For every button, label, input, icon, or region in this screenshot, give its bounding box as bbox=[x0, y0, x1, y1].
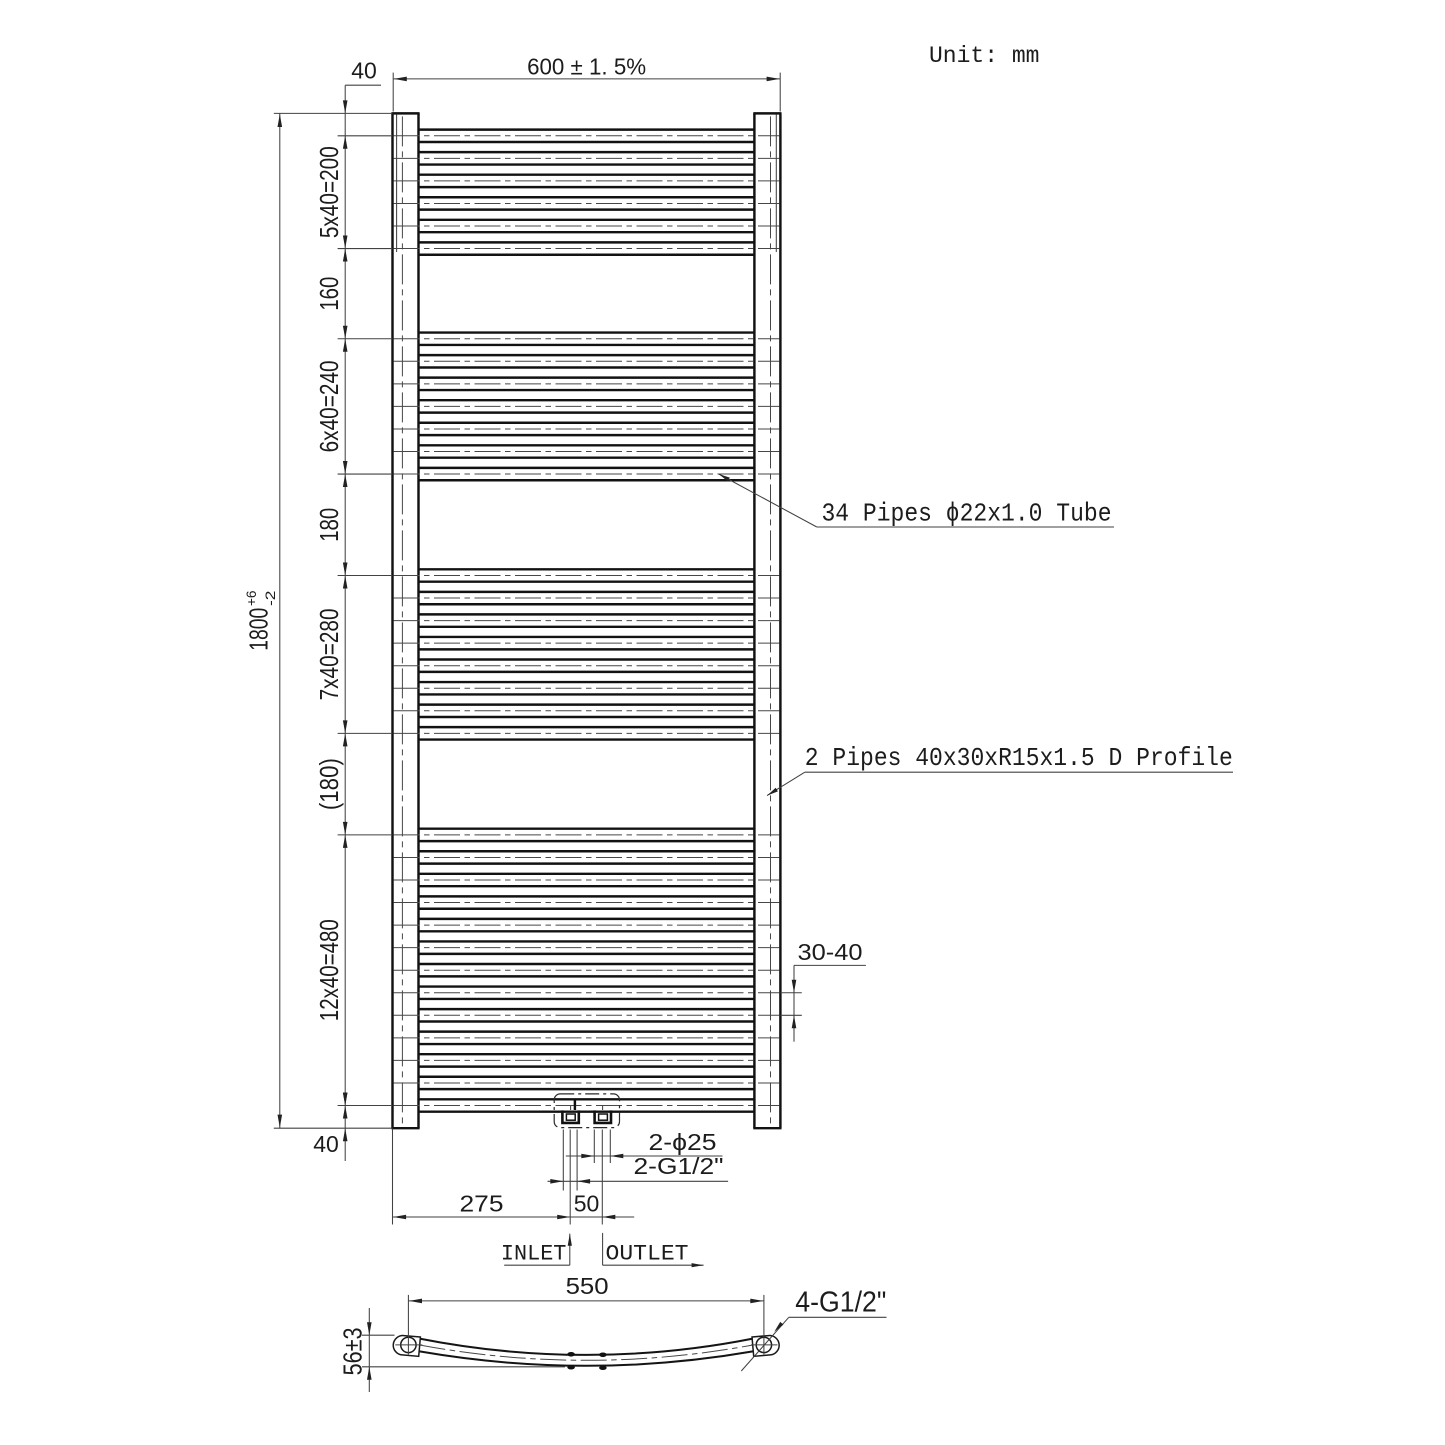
svg-text:12x40=480: 12x40=480 bbox=[314, 919, 344, 1021]
svg-text:(180): (180) bbox=[314, 758, 344, 810]
svg-text:+6: +6 bbox=[244, 591, 259, 607]
svg-text:40: 40 bbox=[313, 1131, 339, 1157]
svg-text:-2: -2 bbox=[263, 591, 278, 607]
svg-text:INLET: INLET bbox=[501, 1241, 567, 1266]
svg-text:1800: 1800 bbox=[243, 608, 273, 651]
svg-text:2-G1/2": 2-G1/2" bbox=[634, 1153, 724, 1179]
svg-text:275: 275 bbox=[460, 1190, 504, 1216]
svg-text:180: 180 bbox=[314, 508, 344, 542]
svg-text:7x40=280: 7x40=280 bbox=[314, 608, 344, 700]
svg-text:4-G1/2": 4-G1/2" bbox=[795, 1286, 886, 1318]
svg-text:OUTLET: OUTLET bbox=[606, 1241, 689, 1266]
svg-text:56±3: 56±3 bbox=[338, 1327, 368, 1375]
svg-text:6x40=240: 6x40=240 bbox=[314, 360, 344, 452]
svg-text:5x40=200: 5x40=200 bbox=[314, 146, 344, 238]
svg-text:34 Pipes ϕ22x1.0 Tube: 34 Pipes ϕ22x1.0 Tube bbox=[822, 499, 1112, 529]
svg-text:Unit: mm: Unit: mm bbox=[929, 43, 1039, 69]
svg-text:30-40: 30-40 bbox=[798, 939, 863, 965]
svg-text:550: 550 bbox=[566, 1273, 609, 1299]
svg-text:40: 40 bbox=[351, 58, 377, 84]
svg-text:600 ± 1. 5%: 600 ± 1. 5% bbox=[527, 54, 646, 80]
svg-text:50: 50 bbox=[574, 1190, 600, 1216]
svg-text:2-ϕ25: 2-ϕ25 bbox=[649, 1129, 717, 1155]
svg-text:160: 160 bbox=[314, 277, 344, 311]
svg-text:2 Pipes 40x30xR15x1.5 D Profil: 2 Pipes 40x30xR15x1.5 D Profile bbox=[805, 743, 1233, 773]
